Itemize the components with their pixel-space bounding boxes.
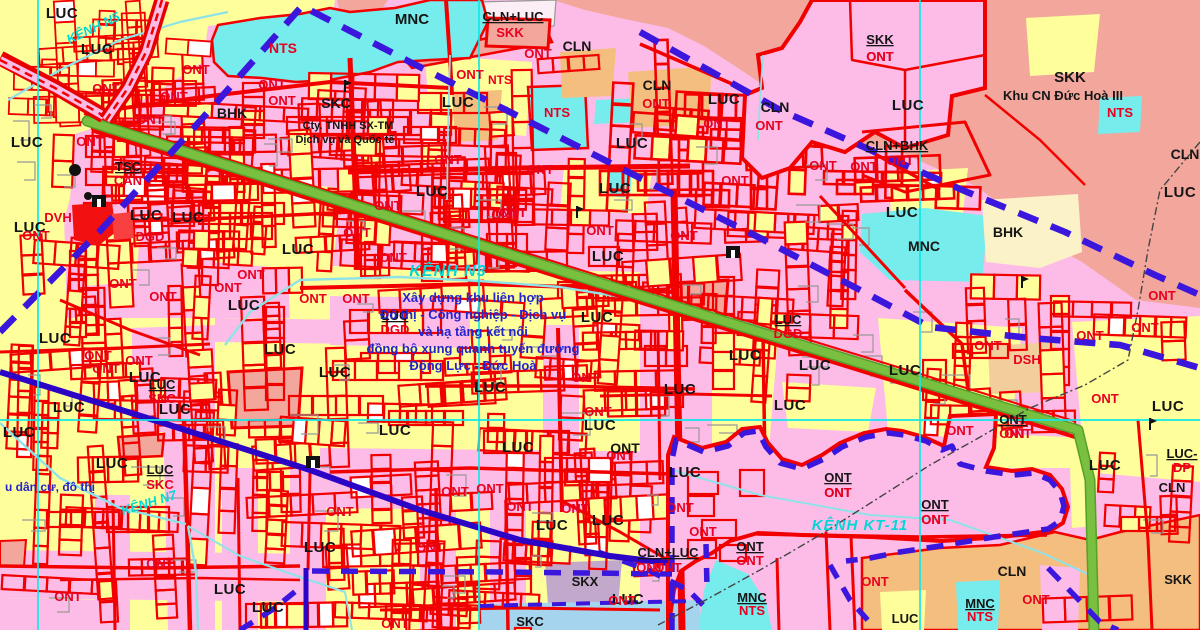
svg-text:MNC: MNC xyxy=(908,238,940,254)
svg-text:ONT: ONT xyxy=(1148,288,1176,303)
svg-text:ONT: ONT xyxy=(342,291,370,306)
svg-text:LUC: LUC xyxy=(228,297,260,314)
svg-text:LUC: LUC xyxy=(599,180,631,197)
svg-text:ONT: ONT xyxy=(92,361,120,376)
svg-text:SKC: SKC xyxy=(516,614,544,629)
svg-text:ONT: ONT xyxy=(524,46,552,61)
svg-text:CLN: CLN xyxy=(563,38,592,54)
svg-text:ONT: ONT xyxy=(721,173,749,188)
svg-text:LUC: LUC xyxy=(379,422,411,439)
svg-text:LUC: LUC xyxy=(172,209,204,226)
svg-text:ONT: ONT xyxy=(736,539,764,554)
svg-text:ONT: ONT xyxy=(136,112,164,127)
svg-text:ONT: ONT xyxy=(491,207,519,222)
svg-text:ONT: ONT xyxy=(824,470,852,485)
svg-text:LUC: LUC xyxy=(130,207,162,224)
svg-text:DVH: DVH xyxy=(44,210,71,225)
svg-text:ONT: ONT xyxy=(586,223,614,238)
svg-text:DP: DP xyxy=(1173,460,1191,475)
svg-text:ONT: ONT xyxy=(866,49,894,64)
svg-text:MNC: MNC xyxy=(395,11,429,28)
svg-text:CLN: CLN xyxy=(998,563,1027,579)
svg-text:NTS: NTS xyxy=(488,73,512,87)
svg-text:LUC: LUC xyxy=(147,462,174,477)
svg-text:LUC: LUC xyxy=(502,439,534,456)
svg-text:CLN: CLN xyxy=(643,77,672,93)
svg-text:LUC: LUC xyxy=(282,241,314,258)
svg-text:ONT: ONT xyxy=(416,540,444,555)
svg-text:DGD: DGD xyxy=(381,322,410,337)
svg-text:LUC: LUC xyxy=(39,330,71,347)
svg-text:LUC: LUC xyxy=(616,135,648,152)
svg-text:NTS: NTS xyxy=(1107,105,1133,120)
svg-text:Động Lực - Đức Hoà: Động Lực - Đức Hoà xyxy=(409,358,537,373)
svg-text:ONT: ONT xyxy=(886,153,914,168)
svg-text:ONT: ONT xyxy=(146,556,174,571)
svg-text:SKC: SKC xyxy=(321,95,351,111)
svg-text:LUC: LUC xyxy=(416,183,448,200)
svg-text:LUC: LUC xyxy=(729,347,761,364)
svg-text:ONT: ONT xyxy=(824,485,852,500)
svg-text:ONT: ONT xyxy=(999,412,1027,427)
svg-text:ONT: ONT xyxy=(1022,592,1050,607)
svg-text:Xây dựng khu liên hợp: Xây dựng khu liên hợp xyxy=(402,290,544,305)
svg-text:LUC: LUC xyxy=(252,599,284,616)
svg-text:ONT: ONT xyxy=(703,116,731,131)
svg-text:LUC-: LUC- xyxy=(1166,446,1197,461)
svg-text:ONT: ONT xyxy=(610,440,640,456)
svg-text:CAN: CAN xyxy=(114,173,142,188)
svg-text:ONT: ONT xyxy=(379,250,407,265)
svg-text:LUC: LUC xyxy=(11,134,43,151)
svg-text:LUC: LUC xyxy=(892,611,919,626)
svg-text:ONT: ONT xyxy=(268,93,296,108)
svg-text:LUC: LUC xyxy=(775,312,802,327)
svg-text:ONT: ONT xyxy=(1091,391,1119,406)
svg-text:ONT: ONT xyxy=(861,574,889,589)
svg-text:ONT: ONT xyxy=(434,152,462,167)
svg-text:ONT: ONT xyxy=(22,228,50,243)
svg-text:ONT: ONT xyxy=(642,96,670,111)
svg-text:ONT: ONT xyxy=(92,81,120,96)
svg-text:SKK: SKK xyxy=(496,25,524,40)
svg-text:ONT: ONT xyxy=(237,267,265,282)
svg-text:ONT: ONT xyxy=(654,560,682,575)
svg-text:SKK: SKK xyxy=(866,32,894,47)
svg-text:LUC: LUC xyxy=(1089,457,1121,474)
svg-text:ONT: ONT xyxy=(571,370,599,385)
svg-text:ONT: ONT xyxy=(584,404,612,419)
svg-text:LUC: LUC xyxy=(3,424,35,441)
svg-text:ONT: ONT xyxy=(76,134,104,149)
svg-text:ONT: ONT xyxy=(809,158,837,173)
svg-text:ONT: ONT xyxy=(54,589,82,604)
svg-text:KÊNH N3: KÊNH N3 xyxy=(409,261,486,280)
svg-text:LUC: LUC xyxy=(214,581,246,598)
svg-text:ONT: ONT xyxy=(326,504,354,519)
svg-text:CLN+LUC: CLN+LUC xyxy=(637,545,699,560)
svg-text:Đô thị - Công nghiệp - Dịch vụ: Đô thị - Công nghiệp - Dịch vụ xyxy=(380,307,566,322)
svg-text:CLN: CLN xyxy=(1159,480,1186,495)
svg-text:ONT: ONT xyxy=(456,67,484,82)
svg-text:Khu CN Đức Hoà III: Khu CN Đức Hoà III xyxy=(1003,88,1123,103)
svg-text:LUC: LUC xyxy=(442,94,474,111)
svg-text:LUC: LUC xyxy=(96,455,128,472)
svg-text:ONT: ONT xyxy=(999,426,1027,441)
svg-text:LUC: LUC xyxy=(264,341,296,358)
svg-text:ONT: ONT xyxy=(921,512,949,527)
svg-text:TSC: TSC xyxy=(115,159,142,174)
svg-text:ONT: ONT xyxy=(160,89,188,104)
svg-text:LUC: LUC xyxy=(304,539,336,556)
svg-text:ONT: ONT xyxy=(850,159,878,174)
svg-text:ONT: ONT xyxy=(670,228,698,243)
svg-text:ONT: ONT xyxy=(182,62,210,77)
svg-text:ONT: ONT xyxy=(526,162,554,177)
svg-text:LUC: LUC xyxy=(774,397,806,414)
svg-text:BHK: BHK xyxy=(993,224,1023,240)
svg-text:NTS: NTS xyxy=(967,609,993,624)
svg-text:LUC: LUC xyxy=(474,379,506,396)
svg-text:LUC: LUC xyxy=(1152,398,1184,415)
svg-text:CLN+BHK: CLN+BHK xyxy=(866,138,929,153)
svg-text:LUC: LUC xyxy=(53,399,85,416)
svg-text:LUC: LUC xyxy=(581,309,613,326)
svg-text:ONT: ONT xyxy=(258,77,286,92)
svg-text:ONT: ONT xyxy=(441,484,469,499)
svg-text:LUC: LUC xyxy=(889,362,921,379)
svg-text:Dịch vụ và Quốc tế: Dịch vụ và Quốc tế xyxy=(295,134,395,146)
svg-text:SKX: SKX xyxy=(572,574,599,589)
svg-text:NTS: NTS xyxy=(739,603,765,618)
svg-text:CLN: CLN xyxy=(1171,146,1200,162)
svg-text:ONT: ONT xyxy=(374,198,402,213)
svg-text:đồng bộ xung quanh tuyến đường: đồng bộ xung quanh tuyến đường xyxy=(367,341,580,356)
svg-text:ONT: ONT xyxy=(946,423,974,438)
svg-text:BHK: BHK xyxy=(217,105,247,121)
svg-text:ONT: ONT xyxy=(214,280,242,295)
svg-text:ONT: ONT xyxy=(476,481,504,496)
svg-text:ONT: ONT xyxy=(299,291,327,306)
svg-text:và hạ tầng kết nối: và hạ tầng kết nối xyxy=(418,324,528,339)
svg-text:LUC: LUC xyxy=(664,381,696,398)
svg-text:SKC: SKC xyxy=(148,391,176,406)
svg-text:ONT: ONT xyxy=(689,524,717,539)
svg-text:DSH: DSH xyxy=(1013,352,1040,367)
svg-text:LUC: LUC xyxy=(892,97,924,114)
svg-text:LUC: LUC xyxy=(319,364,351,381)
svg-text:ONT: ONT xyxy=(1131,320,1159,335)
svg-text:ONT: ONT xyxy=(608,593,636,608)
svg-text:ONT: ONT xyxy=(561,501,589,516)
svg-text:ONT: ONT xyxy=(109,276,137,291)
svg-text:u dân cư, đô thị: u dân cư, đô thị xyxy=(5,480,95,494)
svg-text:LUC: LUC xyxy=(592,512,624,529)
svg-text:NTS: NTS xyxy=(544,105,570,120)
svg-text:LUC: LUC xyxy=(81,41,113,58)
svg-text:ONT: ONT xyxy=(666,500,694,515)
svg-text:LUC: LUC xyxy=(536,517,568,534)
svg-text:LUC: LUC xyxy=(584,417,616,434)
svg-text:LUC: LUC xyxy=(708,91,740,108)
svg-text:LUC: LUC xyxy=(149,377,176,392)
svg-text:SKK: SKK xyxy=(1054,69,1086,86)
svg-text:LUC: LUC xyxy=(1164,184,1196,201)
svg-text:CLN: CLN xyxy=(761,99,790,115)
svg-text:DGD: DGD xyxy=(136,229,165,244)
svg-text:NTS: NTS xyxy=(269,40,297,56)
svg-text:DGD: DGD xyxy=(774,326,803,341)
svg-text:ONT: ONT xyxy=(755,118,783,133)
svg-text:ONT: ONT xyxy=(343,225,371,240)
svg-text:ONT: ONT xyxy=(736,553,764,568)
svg-text:SKK: SKK xyxy=(1164,572,1192,587)
svg-text:ONT: ONT xyxy=(974,338,1002,353)
svg-text:ONT: ONT xyxy=(125,353,153,368)
svg-text:KÊNH KT-11: KÊNH KT-11 xyxy=(812,516,908,534)
svg-text:LUC: LUC xyxy=(886,204,918,221)
svg-text:LUC: LUC xyxy=(669,464,701,481)
svg-text:ONT: ONT xyxy=(1076,328,1104,343)
svg-text:LUC: LUC xyxy=(46,5,78,22)
svg-text:Cty. TNHH SX-TM: Cty. TNHH SX-TM xyxy=(303,120,394,132)
svg-text:CLN+LUC: CLN+LUC xyxy=(482,9,544,24)
svg-text:ONT: ONT xyxy=(506,499,534,514)
svg-text:LUC: LUC xyxy=(592,248,624,265)
svg-text:ONT: ONT xyxy=(149,289,177,304)
svg-text:ONT: ONT xyxy=(381,616,409,630)
svg-text:ONT: ONT xyxy=(921,497,949,512)
svg-text:LUC: LUC xyxy=(799,357,831,374)
